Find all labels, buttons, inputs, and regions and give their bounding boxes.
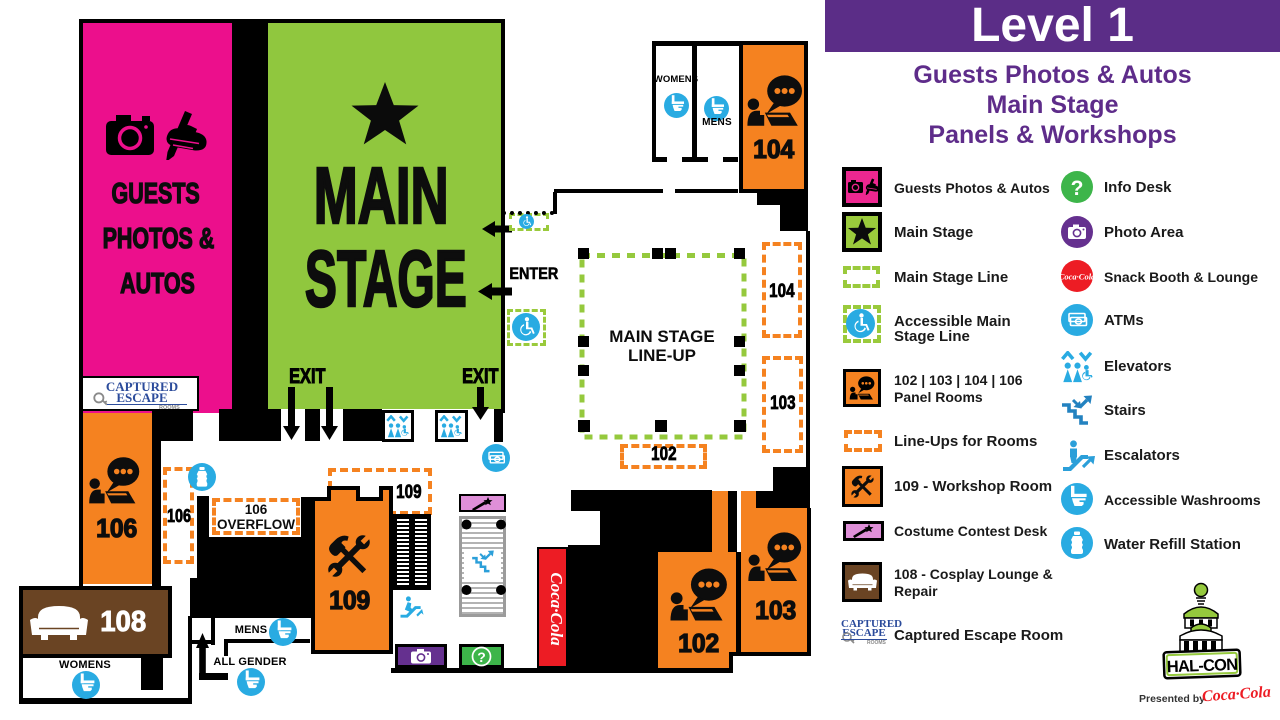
svg-text:Coca·Cola: Coca·Cola bbox=[1061, 272, 1093, 282]
svg-text:?: ? bbox=[477, 649, 486, 665]
svg-text:?: ? bbox=[1071, 177, 1084, 200]
svg-text:HAL-CON: HAL-CON bbox=[1167, 656, 1238, 676]
